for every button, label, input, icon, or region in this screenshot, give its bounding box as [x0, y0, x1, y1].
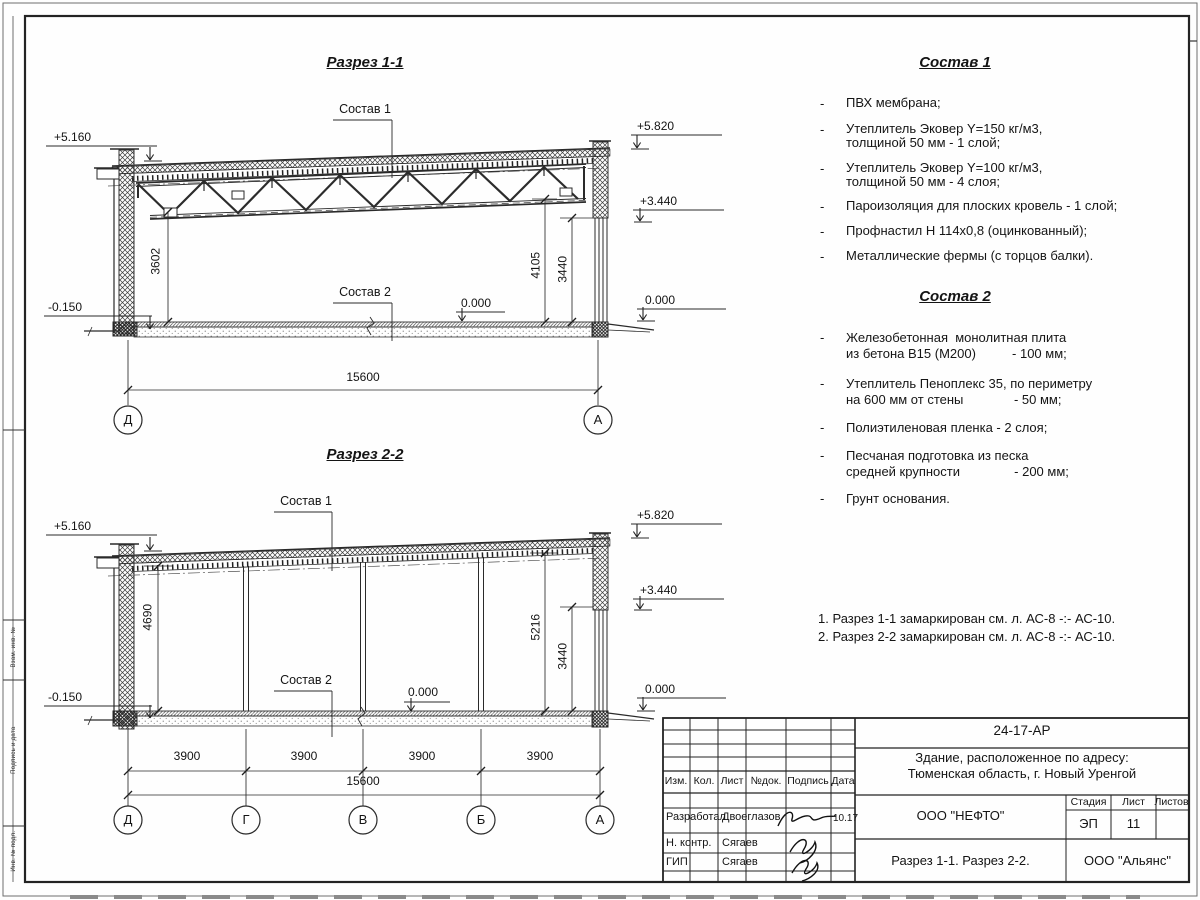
elevation-mark: 0.000 — [645, 294, 675, 307]
sostav1-callout: Состав 1 — [325, 103, 405, 116]
stage-value: ЭП — [1066, 817, 1111, 831]
elevation-mark: +3.440 — [640, 195, 677, 208]
dim-label: 15600 — [328, 371, 398, 384]
section-2-2-title: Разрез 2-2 — [305, 447, 425, 463]
sostav2-callout: Состав 2 — [325, 286, 405, 299]
object-address-line2: Тюменская область, г. Новый Уренгой — [855, 767, 1189, 781]
tb-role: Разработал — [666, 812, 726, 824]
elevation-mark: -0.150 — [48, 301, 82, 314]
axis-bubble-label: Г — [232, 813, 260, 827]
section-1-1-title: Разрез 1-1 — [305, 55, 425, 71]
dim-label: 3900 — [505, 750, 575, 763]
dim-label: 4690 — [142, 587, 155, 647]
axis-bubble-label: А — [586, 813, 614, 827]
elevation-mark: +5.820 — [637, 509, 674, 522]
list-item: -Профнастил Н 114х0,8 (оцинкованный); — [820, 224, 1087, 239]
list-item: -Полиэтиленовая пленка - 2 слоя; — [820, 420, 1047, 436]
leaders — [333, 120, 392, 341]
dim-label: 3440 — [557, 239, 570, 299]
sostav2-callout: Состав 2 — [266, 674, 346, 687]
list-item: -Железобетонная монолитная плитаиз бетон… — [820, 330, 1067, 362]
dim-label: 4105 — [530, 235, 543, 295]
elevation-mark: 0.000 — [645, 683, 675, 696]
axis-bubble-label: А — [584, 413, 612, 427]
sostav2-heading: Состав 2 — [895, 289, 1015, 305]
dim-label: 3900 — [387, 750, 457, 763]
columns — [244, 557, 484, 711]
drawing-sheet: Взам. инв. № Подпись и дата Инв. № подл.… — [0, 0, 1200, 900]
sheet-value: 11 — [1111, 817, 1156, 831]
axis-bubble-label: Б — [467, 813, 495, 827]
section-1-1-drawing — [44, 120, 726, 434]
note-line: 1. Разрез 1-1 замаркирован см. л. АС-8 -… — [818, 612, 1115, 626]
doc-number: 24-17-АР — [855, 724, 1189, 738]
dimensions — [114, 195, 612, 434]
list-item: -Утеплитель Пеноплекс 35, по периметруна… — [820, 376, 1092, 408]
org-name: ООО "Альянс" — [1066, 854, 1189, 868]
list-item: -Песчаная подготовка из пескасредней кру… — [820, 448, 1069, 480]
elevation-mark: +3.440 — [640, 584, 677, 597]
dim-label: 5216 — [530, 597, 543, 657]
dim-label: 3900 — [269, 750, 339, 763]
axis-bubble-label: В — [349, 813, 377, 827]
sostav1-heading: Состав 1 — [895, 55, 1015, 71]
dim-label: 3602 — [150, 231, 163, 291]
elevation-mark: +5.160 — [54, 131, 91, 144]
axis-bubble-label: Д — [114, 413, 142, 427]
axis-bubble-label: Д — [114, 813, 142, 827]
dim-label: 15600 — [328, 775, 398, 788]
tb-name: Двоеглазов — [722, 812, 780, 824]
tb-col-header: Дата — [823, 776, 863, 787]
sheet-header: Лист — [1111, 797, 1156, 808]
floor-slab — [84, 711, 654, 726]
company-name: ООО "НЕФТО" — [855, 809, 1066, 823]
stage-header: Стадия — [1066, 797, 1111, 808]
elevation-mark: +5.820 — [637, 120, 674, 133]
list-item: -Утеплитель Эковер Y=100 кг/м3,толщиной … — [820, 161, 1042, 188]
tb-role: Н. контр. — [666, 838, 711, 850]
sheet-title: Разрез 1-1. Разрез 2-2. — [855, 854, 1066, 868]
tb-role: ГИП — [666, 857, 688, 869]
sheets-header: Листов — [1153, 797, 1190, 808]
elevation-mark: 0.000 — [461, 297, 491, 310]
tb-name: Сягаев — [722, 857, 758, 869]
sostav1-callout: Состав 1 — [266, 495, 346, 508]
elevation-mark: +5.160 — [54, 520, 91, 533]
elevation-mark: 0.000 — [408, 686, 438, 699]
dim-label: 3900 — [152, 750, 222, 763]
frame-side-label: Взам. инв. № — [11, 597, 17, 697]
frame-side-label: Инв. № подл. — [11, 801, 17, 900]
list-item: -Утеплитель Эковер Y=150 кг/м3,толщиной … — [820, 122, 1042, 149]
dim-label: 3440 — [557, 626, 570, 686]
dimensions — [114, 549, 614, 834]
note-line: 2. Разрез 2-2 замаркирован см. л. АС-8 -… — [818, 630, 1115, 644]
frame-side-label: Подпись и дата — [11, 700, 17, 800]
list-item: -ПВХ мембрана; — [820, 96, 941, 111]
elevation-mark: -0.150 — [48, 691, 82, 704]
list-item: -Грунт основания. — [820, 491, 950, 507]
floor-slab — [84, 322, 654, 337]
leaders — [274, 512, 365, 737]
tb-name: Сягаев — [722, 838, 758, 850]
list-item: -Металлические фермы (с торцов балки). — [820, 249, 1093, 264]
object-address-line1: Здание, расположенное по адресу: — [855, 751, 1189, 765]
list-item: -Пароизоляция для плоских кровель - 1 сл… — [820, 199, 1117, 214]
